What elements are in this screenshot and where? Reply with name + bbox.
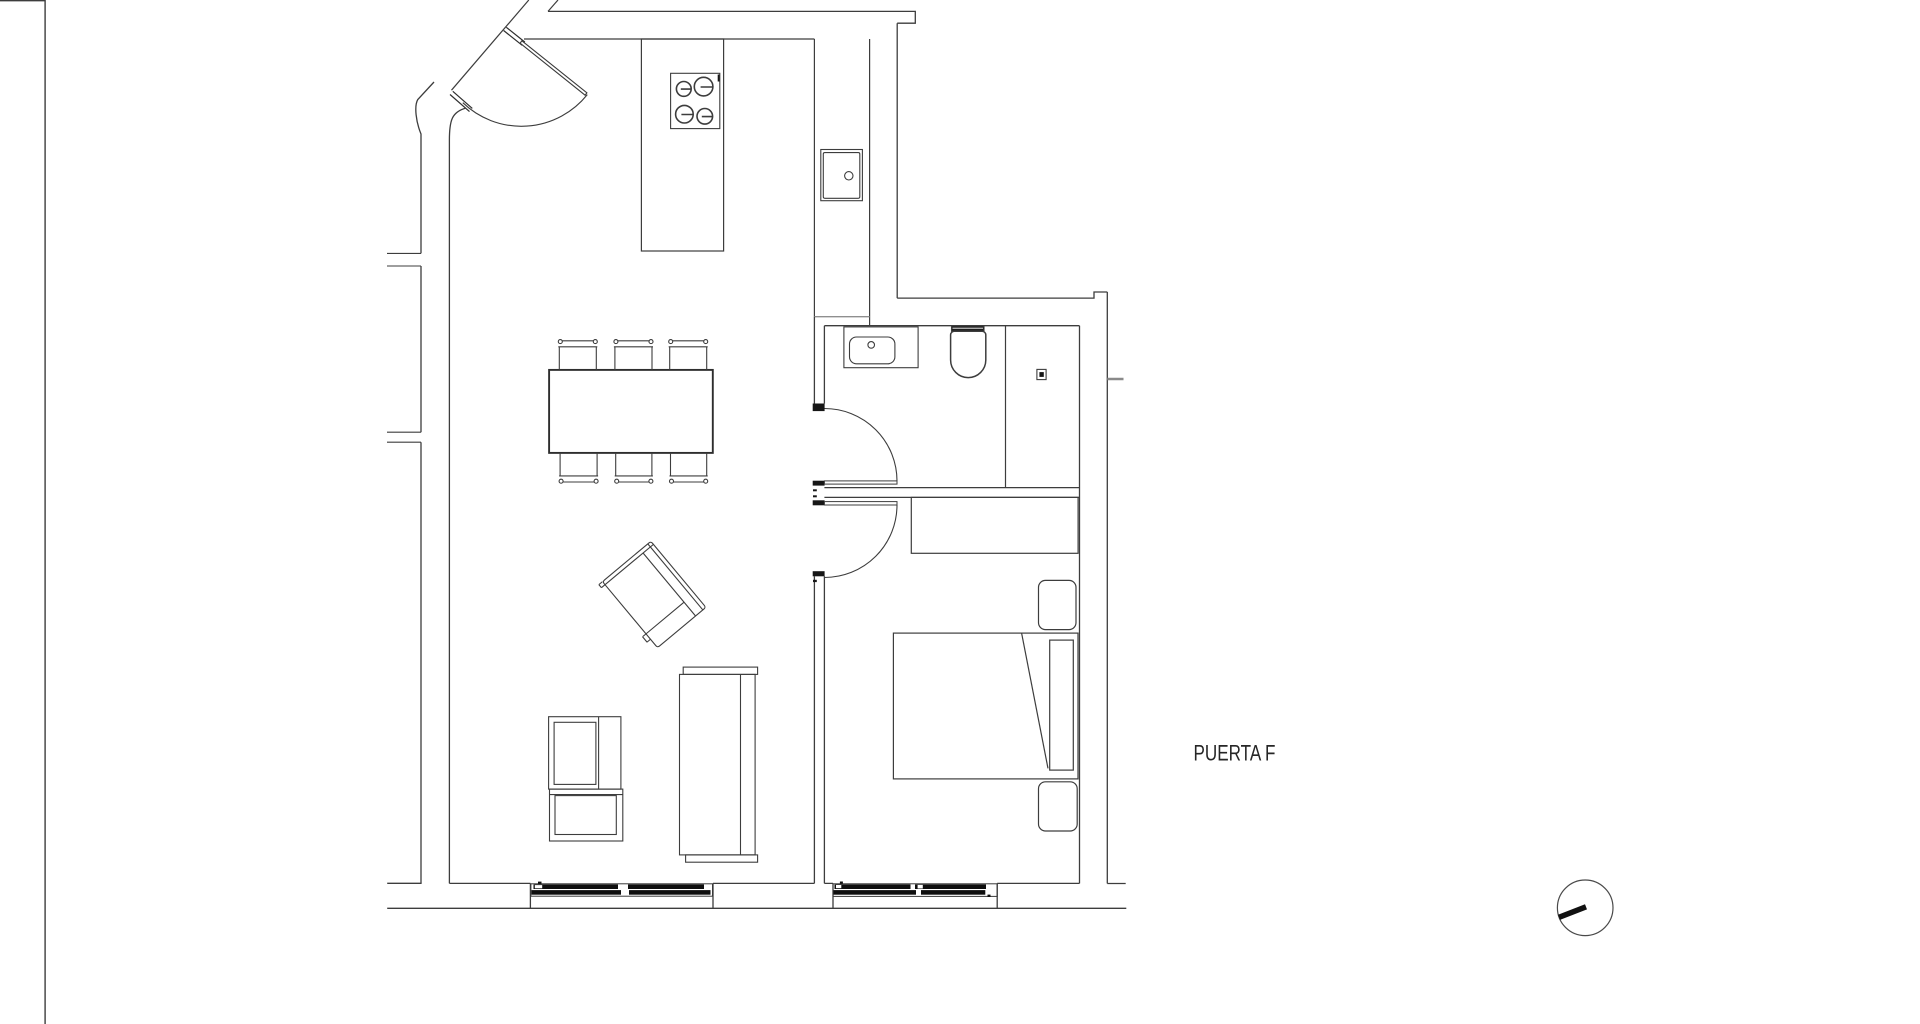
svg-text:PUERTA F: PUERTA F bbox=[1194, 741, 1276, 766]
